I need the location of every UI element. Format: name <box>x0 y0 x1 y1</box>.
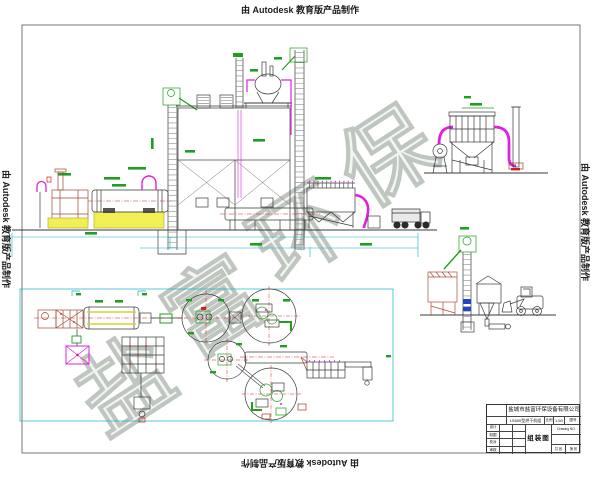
blank-cell <box>500 425 513 432</box>
elevation-view <box>12 48 437 257</box>
row-label-approve: 审核 <box>487 447 500 454</box>
cad-sheet: 盐 富 环 保 由 Autodesk 教育版产品制作 由 Autodesk 教育… <box>0 0 600 480</box>
scale-value: 1:50 <box>554 417 565 425</box>
sheet-total: 共 张 <box>552 445 566 454</box>
blank-cell <box>513 425 526 432</box>
wheel-loader <box>502 287 543 316</box>
title-block: 盐城市盐富环保设备有限公司 LS600型烘干机组 比例 1:50 图号 设计 制… <box>486 404 580 453</box>
detail-circle-1 <box>176 290 236 346</box>
scale-label: 比例 <box>545 417 554 425</box>
blank-cell <box>513 447 526 454</box>
detail-circle-2 <box>238 286 300 346</box>
baghouse-elevation <box>307 177 380 228</box>
sheet-frame <box>22 25 580 453</box>
detail-circle-3 <box>204 338 250 382</box>
truck <box>392 209 430 228</box>
drawing-title: 组装图 <box>526 425 552 454</box>
row-label-draw: 制图 <box>487 432 500 439</box>
blank-cell <box>552 435 581 445</box>
blank-cell <box>487 417 507 425</box>
blank-cell <box>500 447 513 454</box>
drum-plan <box>34 300 186 329</box>
row-label-check: 校对 <box>487 439 500 446</box>
storage-silo <box>151 95 292 230</box>
company-name: 盐城市盐富环保设备有限公司 <box>507 405 581 417</box>
mixer-feed-ladder <box>233 53 243 108</box>
drawing-no-en: Drawing NO. <box>552 425 581 435</box>
detail-elevator-loader <box>420 227 556 332</box>
plan-view <box>20 286 393 423</box>
rotary-drum-dryer <box>88 167 172 228</box>
drawing-no-label: 图号 <box>565 417 581 425</box>
sheet-no: 第 张 <box>566 445 581 454</box>
mixer-unit <box>244 57 292 135</box>
drum-plan-2 <box>240 345 391 385</box>
drawing-code: LS600型烘干机组 <box>507 417 545 425</box>
blank-cell <box>513 439 526 446</box>
detail-circle-4 <box>242 365 306 423</box>
title-block-logo-cell <box>487 405 507 417</box>
baghouse-plan-1 <box>122 337 164 422</box>
row-label-design: 设计 <box>487 425 500 432</box>
blank-cell <box>513 432 526 439</box>
blank-cell <box>500 432 513 439</box>
damper-box-plan <box>66 329 89 364</box>
detail-dust-collector <box>424 96 548 173</box>
bucket-elevator-a <box>163 88 197 250</box>
blank-cell <box>500 439 513 446</box>
dimension-lines-elevation <box>12 232 418 257</box>
burner-furnace <box>48 169 88 228</box>
